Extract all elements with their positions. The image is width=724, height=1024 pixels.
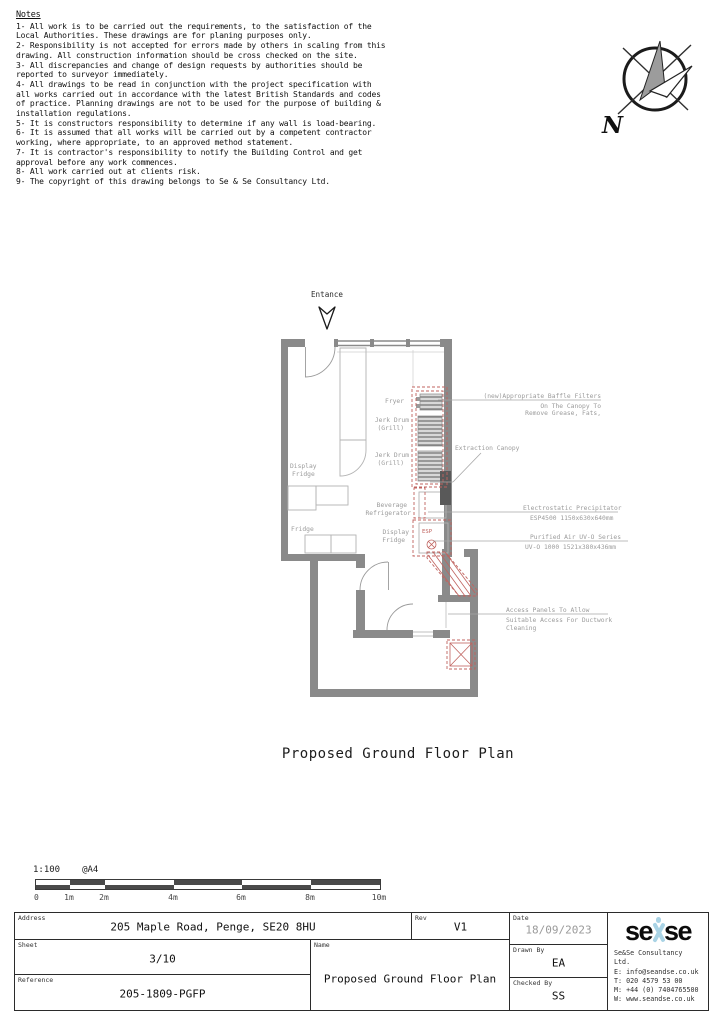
title-block: Address 205 Maple Road, Penge, SE20 8HU … [14, 912, 709, 1011]
sheet-cell: Sheet 3/10 [14, 939, 311, 975]
reference-cell: Reference 205-1809-PGFP [14, 974, 311, 1011]
note-line: 7- It is contractor's responsibility to … [16, 148, 386, 167]
scale-bar-segment [242, 885, 311, 890]
scale-caption: 1:100@A4 [33, 865, 98, 875]
north-arrow: N [598, 36, 698, 136]
name-cell: Name Proposed Ground Floor Plan [310, 939, 510, 1011]
jerk-drum-unit [418, 451, 442, 481]
label-beverage: Beverage [377, 502, 408, 509]
scale-tick: 0 [34, 893, 39, 902]
fryer-knob [416, 397, 420, 401]
address-value: 205 Maple Road, Penge, SE20 8HU [15, 921, 411, 934]
entrance-arrow-icon [319, 307, 335, 329]
scale-tick: 10m [372, 893, 386, 902]
checked-by-value: SS [510, 989, 607, 1002]
note-line: 8- All work carried out at clients risk. [16, 167, 386, 177]
sheet-value: 3/10 [15, 952, 310, 965]
sheet-label: Sheet [18, 941, 38, 949]
drawing-sheet: Notes 1- All work is to be carried out t… [0, 0, 724, 1024]
reference-label: Reference [18, 976, 53, 984]
note-line: 9- The copyright of this drawing belongs… [16, 177, 386, 187]
label-fridge: Fridge [291, 526, 314, 533]
door-arc [305, 347, 335, 377]
walls [281, 339, 478, 697]
fryer-unit [420, 394, 442, 410]
date-value: 18/09/2023 [510, 924, 607, 937]
label-display-fridge-2: Display [382, 529, 409, 536]
checked-by-label: Checked By [513, 979, 552, 987]
date-label: Date [513, 914, 529, 922]
checked-by-cell: Checked By SS [509, 977, 608, 1011]
label-fryer: Fryer [385, 398, 404, 405]
note-line: 4- All drawings to be read in conjunctio… [16, 80, 386, 119]
note-line: 6- It is assumed that all works will be … [16, 128, 386, 147]
company-logo: sese [614, 916, 702, 946]
annotation-uv: UV-O 1000 1521x380x436mm [525, 544, 616, 551]
annotation-access: Suitable Access For Ductwork [506, 617, 612, 624]
notes-title: Notes [16, 11, 386, 21]
note-line: 3- All discrepancies and change of desig… [16, 61, 386, 80]
company-phone: T: 020 4579 53 00 [614, 977, 702, 986]
annotation-baffle: On The Canopy To [540, 403, 601, 410]
company-details: Se&Se Consultancy Ltd. E: info@seandse.c… [614, 949, 702, 1005]
scale-tick: 6m [236, 893, 246, 902]
name-value: Proposed Ground Floor Plan [311, 972, 509, 985]
scale-paper-size: @A4 [82, 865, 98, 875]
label-beverage: Refrigerator [366, 510, 412, 517]
reference-value: 205-1809-PGFP [15, 988, 310, 1001]
label-display-fridge-2: Fridge [382, 537, 405, 544]
rev-cell: Rev V1 [411, 912, 510, 940]
annotation-baffle: (new)Appropriate Baffle Filters [483, 393, 601, 400]
scale-bar-segment [311, 880, 380, 885]
label-display-fridge: Display [290, 463, 317, 470]
date-cell: Date 18/09/2023 [509, 912, 608, 945]
annotation-precipitator: ESP4500 1150x630x640mm [530, 515, 614, 522]
north-label: N [601, 112, 624, 136]
label-jerk-drum-2: (Grill) [377, 460, 404, 467]
annotation-access: Access Panels To Allow [506, 607, 590, 614]
scale-bar-segment [174, 880, 243, 885]
annotation-extraction-canopy: Extraction Canopy [455, 445, 520, 452]
name-label: Name [314, 941, 330, 949]
door-threshold [413, 632, 433, 636]
scale-bar [35, 879, 381, 890]
rev-value: V1 [412, 921, 509, 934]
logo-text-left: se [625, 916, 652, 946]
fridge-units [288, 486, 448, 553]
logo-text-right: se [664, 916, 691, 946]
drawn-by-value: EA [510, 956, 607, 969]
company-email: E: info@seandse.co.uk [614, 968, 702, 977]
note-line: 1- All work is to be carried out the req… [16, 22, 386, 41]
scale-tick: 8m [305, 893, 315, 902]
entrance-label: Entance [311, 290, 343, 299]
window-lines [334, 341, 444, 346]
label-esp: ESP [422, 529, 433, 535]
company-name: Se&Se Consultancy Ltd. [614, 949, 702, 968]
scale-tick: 2m [99, 893, 109, 902]
note-line: 2- Responsibility is not accepted for er… [16, 41, 386, 60]
scale-bar-segment [70, 880, 104, 885]
door-arc [387, 604, 413, 630]
drawn-by-cell: Drawn By EA [509, 944, 608, 978]
floor-plan-drawing: Entance [260, 283, 650, 705]
extract-duct [427, 552, 477, 596]
door-arcs [305, 347, 413, 630]
scale-bar-segment [105, 885, 174, 890]
note-line: 5- It is constructors responsibility to … [16, 119, 386, 129]
scale-tick: 4m [168, 893, 178, 902]
label-jerk-drum-1: Jerk Drum [375, 417, 409, 424]
fryer-knob [416, 404, 420, 408]
drawing-title: Proposed Ground Floor Plan [278, 746, 518, 762]
jerk-drum-unit [418, 416, 442, 446]
annotation-baffle: Remove Grease, Fats, [525, 410, 601, 417]
label-display-fridge: Fridge [292, 471, 315, 478]
drawn-by-label: Drawn By [513, 946, 544, 954]
annotation-access: Cleaning [506, 625, 537, 632]
label-jerk-drum-2: Jerk Drum [375, 452, 409, 459]
duct-riser [440, 471, 451, 505]
address-cell: Address 205 Maple Road, Penge, SE20 8HU [14, 912, 412, 940]
scale-tick: 1m [64, 893, 74, 902]
annotation-precipitator: Electrostatic Precipitator [523, 505, 622, 512]
scale-bar-segment [36, 885, 70, 890]
company-website: W: www.seandse.co.uk [614, 995, 702, 1004]
company-mobile: M: +44 (0) 7404765500 [614, 986, 702, 995]
scale-ratio: 1:100 [33, 865, 60, 875]
counter [340, 348, 366, 476]
annotation-uv: Purified Air UV-O Series [530, 534, 621, 541]
logo-ampersand-icon [651, 918, 665, 944]
notes-section: Notes 1- All work is to be carried out t… [16, 11, 386, 187]
company-cell: sese Se&Se Consultancy Ltd. E: info@sean… [607, 912, 709, 1011]
label-jerk-drum-1: (Grill) [377, 425, 404, 432]
